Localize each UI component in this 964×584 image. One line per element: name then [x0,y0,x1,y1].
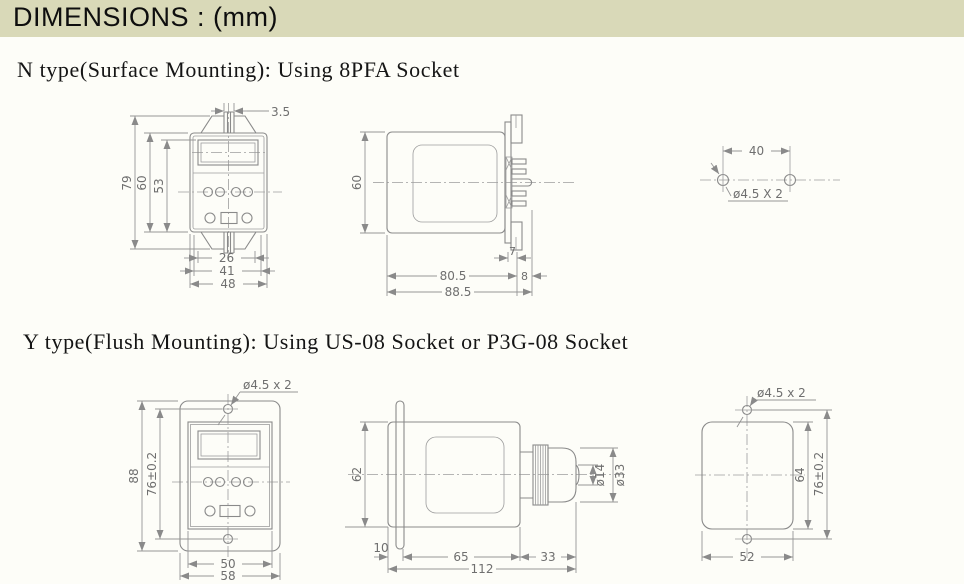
n-front-drawing: 3.5 79 60 53 26 41 48 [100,95,300,310]
y-front-outline [180,401,280,551]
dim-n-front-79: 79 [120,175,134,190]
dim-n-side-7: 7 [509,245,516,258]
dim-y-side-62: 62 [350,467,364,482]
dim-n-side-80-5: 80.5 [440,269,467,283]
dim-y-side-33: 33 [540,550,555,564]
section-title-n-type: N type(Surface Mounting): Using 8PFA Soc… [17,57,460,83]
dim-y-front-58: 58 [220,569,235,583]
dim-y-front-88: 88 [127,468,141,483]
y-front-drawing: ø4.5 x 2 88 76±0.2 50 58 [130,374,315,584]
dim-n-front-41: 41 [219,264,234,278]
dim-n-holes-40: 40 [749,144,764,158]
y-cutout-centerlines [695,396,805,558]
dim-n-side-8: 8 [521,270,528,283]
dim-y-cutout-76: 76±0.2 [812,452,826,496]
dim-y-front-hole-label: ø4.5 x 2 [243,378,292,392]
header-bar: DIMENSIONS : (mm) [0,0,964,37]
section-title-y-type: Y type(Flush Mounting): Using US-08 Sock… [23,329,628,355]
y-side-drawing: ø14 ø33 62 10 65 33 112 [340,376,630,582]
dim-y-side-65: 65 [453,550,468,564]
dim-n-front-clip: 3.5 [271,105,290,119]
dim-y-side-112: 112 [471,562,494,576]
y-side-outline [388,401,579,549]
dim-n-holes-label: ø4.5 X 2 [733,187,783,201]
y-cutout-outline [702,406,793,544]
dim-n-front-48: 48 [220,277,235,291]
dim-y-cutout-64: 64 [793,467,807,482]
dim-y-cutout-hole-label: ø4.5 x 2 [757,386,806,400]
n-holes-drawing: 40 ø4.5 X 2 [680,128,860,233]
dim-y-side-dia14: ø14 [593,464,607,487]
page-title: DIMENSIONS : (mm) [13,2,278,33]
y-cutout-drawing: ø4.5 x 2 64 76±0.2 52 [690,374,870,584]
dim-n-side-88-5: 88.5 [445,285,472,299]
dim-y-side-dia33: ø33 [613,464,627,487]
n-side-drawing: 60 7 80.5 8 88.5 [345,95,580,310]
y-side-dimensions: ø14 ø33 62 10 65 33 112 [345,422,627,576]
dim-n-front-26: 26 [219,251,234,265]
dim-n-side-60: 60 [350,175,364,190]
n-side-dimensions: 60 7 80.5 8 88.5 [350,132,547,299]
dim-n-front-53: 53 [152,178,166,193]
dimensions-page: DIMENSIONS : (mm) N type(Surface Mountin… [0,0,964,584]
dim-y-front-76: 76±0.2 [145,452,159,496]
dim-y-side-10: 10 [373,541,388,555]
n-front-dimensions: 3.5 79 60 53 26 41 48 [120,103,290,291]
dim-y-cutout-52: 52 [739,550,754,564]
dim-n-front-60: 60 [135,175,149,190]
